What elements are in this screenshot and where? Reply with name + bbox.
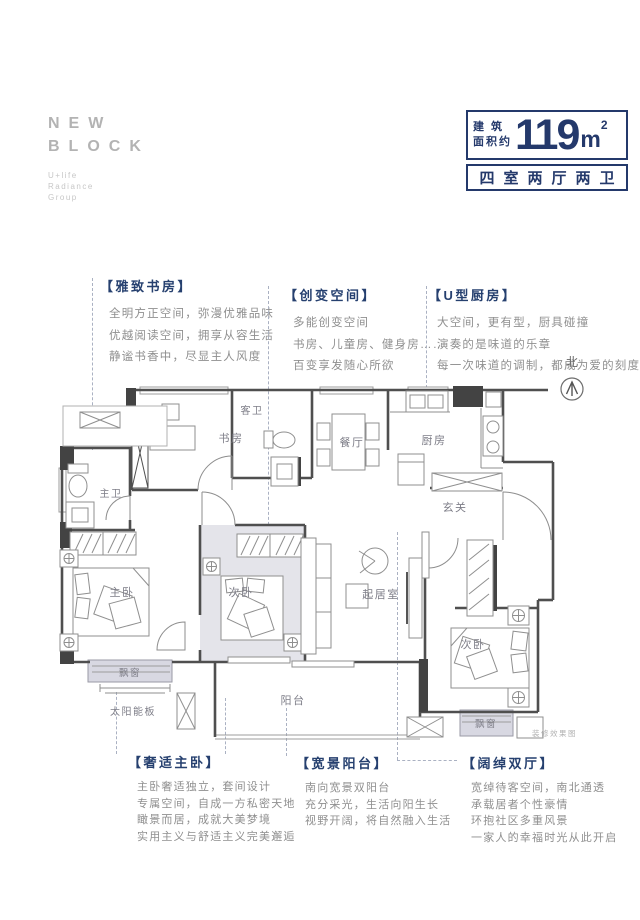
annotation-balcony: 【宽景阳台】 南向宽景双阳台 充分采光，生活向阳生长 视野开阔，将自然融入生活 xyxy=(296,753,451,830)
leader-line-kitchen xyxy=(426,286,427,388)
room-label-second-bed-right: 次卧 xyxy=(461,637,486,651)
layout-box: 四室两厅两卫 xyxy=(466,164,628,191)
annotation-kitchen-title: 【U型厨房】 xyxy=(428,285,640,304)
room-label-guest-bath: 客卫 xyxy=(241,404,264,417)
area-label: 建 筑 面积约 xyxy=(473,120,512,150)
logo-line-2: BLOCK xyxy=(48,135,150,158)
annotation-kitchen: 【U型厨房】 大空间，更有型，厨具碰撞 演奏的是味道的乐章 每一次味道的调制，都… xyxy=(428,285,640,378)
room-label-study: 书房 xyxy=(219,432,244,445)
render-note: 装修效果图 xyxy=(532,728,577,739)
room-label-second-bed-mid: 次卧 xyxy=(229,585,254,599)
room-label-bay-left: 飘窗 xyxy=(119,667,141,679)
annotation-study: 【雅致书房】 全明方正空间，弥漫优雅品味 优越阅读空间，拥享从容生活 静谧书香中… xyxy=(100,276,274,369)
room-label-solar: 太阳能板 xyxy=(110,705,156,718)
furniture xyxy=(60,391,543,738)
annotation-master-title: 【奢适主卧】 xyxy=(128,752,296,771)
annotation-study-title: 【雅致书房】 xyxy=(100,276,274,295)
compass-label: 北 xyxy=(566,355,578,369)
area-badge: 建 筑 面积约 119 m2 四室两厅两卫 xyxy=(466,110,628,191)
room-label-kitchen: 厨房 xyxy=(422,434,447,447)
room-label-foyer: 玄关 xyxy=(443,500,468,514)
logo-line-1: NEW xyxy=(48,112,150,135)
room-label-master-bath: 主卫 xyxy=(100,488,123,500)
annotation-master: 【奢适主卧】 主卧奢适独立，套间设计 专属空间，自成一方私密天地 瞰景而居，成就… xyxy=(128,752,296,845)
floor-plan: 书房 客卫 餐厅 厨房 玄关 主卫 主卧 次卧 起居室 次卧 飘窗 飘窗 太阳能… xyxy=(52,383,572,751)
room-label-balcony: 阳台 xyxy=(281,693,306,707)
area-unit: m2 xyxy=(580,119,607,151)
logo-subtitle: U+life Radiance Group xyxy=(48,170,150,203)
room-label-master-bed: 主卧 xyxy=(110,586,135,599)
annotation-flex-title: 【创变空间】 xyxy=(284,285,445,304)
area-box: 建 筑 面积约 119 m2 xyxy=(466,110,628,160)
room-label-bay-right: 飘窗 xyxy=(475,718,497,730)
area-value: 119 xyxy=(515,114,578,157)
annotation-halls: 【阔绰双厅】 宽绰待客空间，南北通透 承载居者个性豪情 环抱社区多重风景 一家人… xyxy=(462,753,617,846)
floorplan-poster: NEW BLOCK U+life Radiance Group 建 筑 面积约 … xyxy=(0,0,640,920)
room-label-dining: 餐厅 xyxy=(340,435,365,449)
leader-line-halls-h xyxy=(397,760,457,761)
annotation-flex: 【创变空间】 多能创变空间 书房、儿童房、健身房…… 百变享发随心所欲 xyxy=(284,285,445,378)
annotation-halls-title: 【阔绰双厅】 xyxy=(462,753,617,772)
room-label-living: 起居室 xyxy=(362,587,400,601)
brand-logo: NEW BLOCK U+life Radiance Group xyxy=(48,112,150,203)
annotation-balcony-title: 【宽景阳台】 xyxy=(296,753,451,772)
